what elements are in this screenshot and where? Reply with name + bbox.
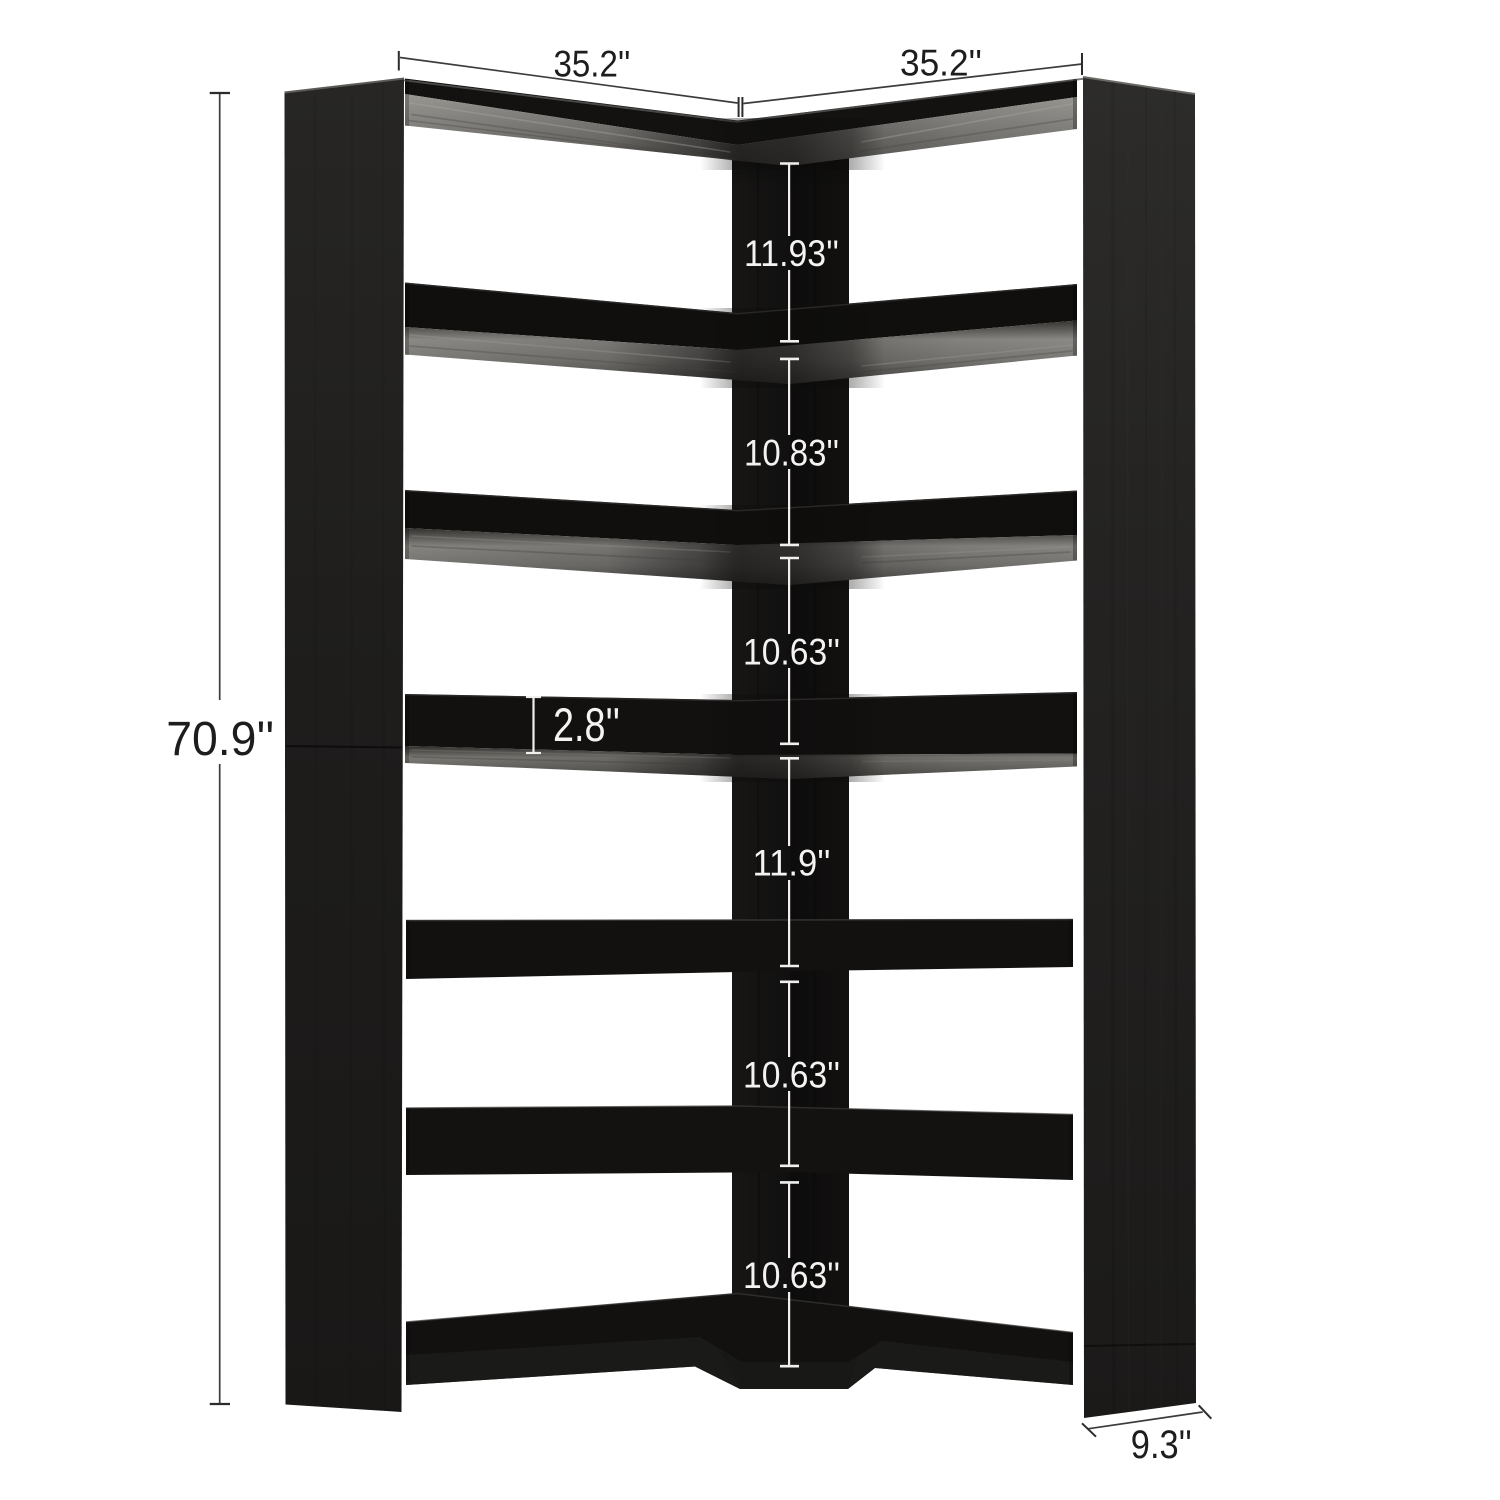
svg-text:9.3'': 9.3'' [1131, 1423, 1192, 1467]
svg-text:11.93'': 11.93'' [744, 233, 839, 274]
svg-text:2.8'': 2.8'' [553, 698, 620, 751]
svg-text:10.83'': 10.83'' [744, 432, 839, 473]
svg-text:10.63'': 10.63'' [743, 1054, 840, 1095]
svg-text:10.63'': 10.63'' [743, 631, 840, 672]
svg-text:11.9'': 11.9'' [753, 843, 831, 884]
svg-text:35.2'': 35.2'' [554, 43, 631, 84]
svg-text:70.9'': 70.9'' [166, 713, 274, 766]
svg-text:35.2'': 35.2'' [900, 43, 982, 84]
svg-text:10.63'': 10.63'' [743, 1255, 840, 1296]
